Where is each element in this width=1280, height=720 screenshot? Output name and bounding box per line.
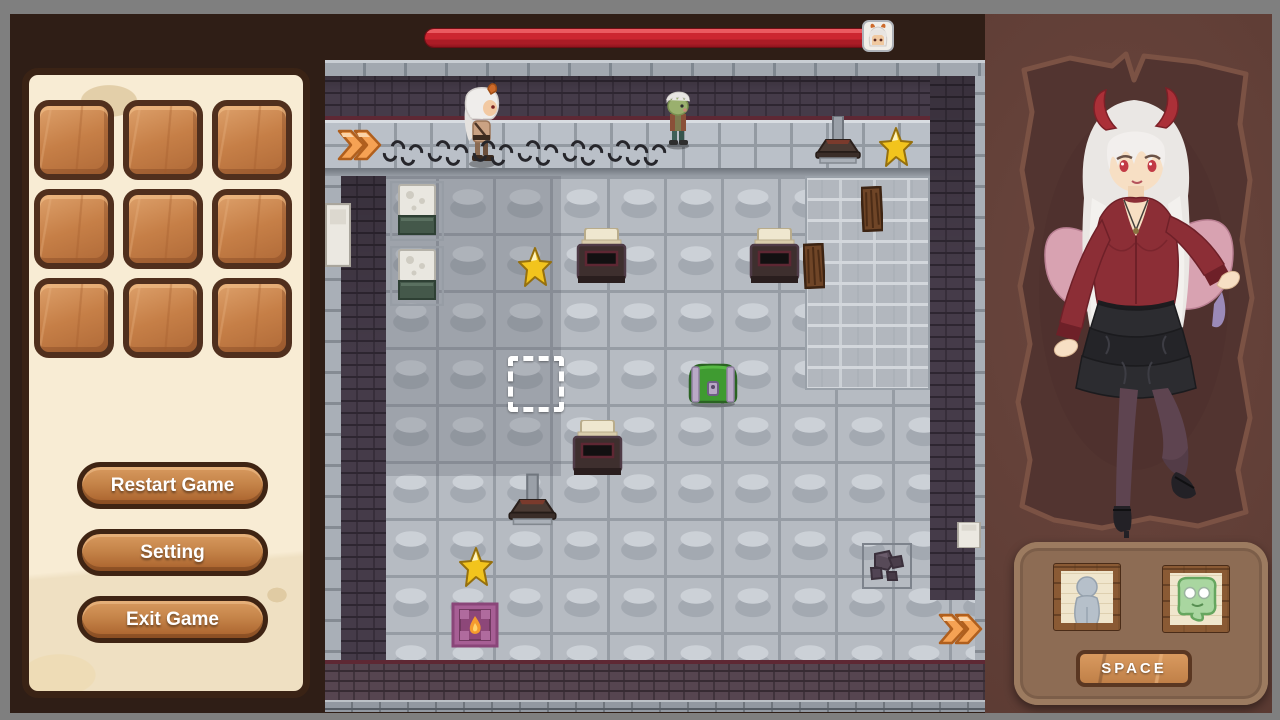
footprint-9 <box>563 140 580 158</box>
star-3[interactable] <box>458 546 494 590</box>
footprint-4 <box>446 144 463 162</box>
star-1[interactable] <box>878 126 914 170</box>
wall-top <box>325 76 985 116</box>
trap-press-2 <box>505 472 560 528</box>
menu-panel: Restart Game Setting Exit Game <box>22 68 310 698</box>
wall-block-right <box>957 522 981 548</box>
game-screen: Restart Game Setting Exit Game <box>0 0 1280 720</box>
dungeon-map <box>325 60 985 712</box>
gray-figure-icon <box>1061 571 1113 623</box>
map-arrow-left[interactable] <box>336 126 382 164</box>
inventory-slot-1[interactable] <box>34 100 114 180</box>
wall-block-left <box>325 203 351 267</box>
footprint-12 <box>626 144 643 162</box>
space-button[interactable]: SPACE <box>1076 650 1192 687</box>
bottom-wall <box>325 664 985 700</box>
setting-button[interactable]: Setting <box>77 529 268 576</box>
footprint-11 <box>608 140 625 158</box>
footprint-7 <box>518 140 535 158</box>
footprint-13 <box>644 144 661 162</box>
wall-cap <box>325 60 985 76</box>
inventory-slot-5[interactable] <box>123 189 203 269</box>
party-portrait-gray-figure[interactable] <box>1053 563 1121 631</box>
wood-hatch-1 <box>861 186 883 232</box>
inventory-slot-4[interactable] <box>34 189 114 269</box>
bottom-cobble <box>325 700 985 712</box>
player-face-icon <box>862 20 894 52</box>
furnace-3 <box>569 420 626 480</box>
character-panel: SPACE <box>985 14 1272 713</box>
party-portrait-green-blob[interactable] <box>1162 565 1230 633</box>
zombie-enemy <box>661 88 695 150</box>
wood-hatch-2 <box>803 243 825 289</box>
health-fill <box>425 29 883 47</box>
machine-2 <box>390 246 444 306</box>
trap-press-1 <box>812 116 864 164</box>
inventory-slot-9[interactable] <box>212 278 292 358</box>
demon-girl-illustration <box>1026 78 1246 538</box>
inventory-slot-8[interactable] <box>123 278 203 358</box>
machine-1 <box>390 181 444 241</box>
footprint-8 <box>536 144 553 162</box>
green-chest[interactable] <box>687 358 739 408</box>
inventory-slot-grid <box>34 100 292 358</box>
flame-tile <box>451 602 499 648</box>
footprint-5 <box>473 140 490 158</box>
map-arrow-right[interactable] <box>937 610 983 648</box>
footprint-6 <box>491 144 508 162</box>
footprint-1 <box>383 140 400 158</box>
inventory-slot-6[interactable] <box>212 189 292 269</box>
furnace-1 <box>573 228 630 288</box>
furnace-2 <box>746 228 803 288</box>
footprint-3 <box>428 140 445 158</box>
green-blob-icon <box>1170 573 1222 625</box>
rock-pile <box>861 542 913 590</box>
inventory-slot-3[interactable] <box>212 100 292 180</box>
exit-game-button[interactable]: Exit Game <box>77 596 268 643</box>
footprint-10 <box>581 144 598 162</box>
restart-game-button[interactable]: Restart Game <box>77 462 268 509</box>
boss-health-bar <box>424 28 884 48</box>
party-panel: SPACE <box>1014 542 1268 705</box>
inventory-slot-2[interactable] <box>123 100 203 180</box>
footprint-2 <box>401 144 418 162</box>
selection-cursor[interactable] <box>508 356 564 412</box>
star-2[interactable] <box>517 246 553 290</box>
inventory-slot-7[interactable] <box>34 278 114 358</box>
